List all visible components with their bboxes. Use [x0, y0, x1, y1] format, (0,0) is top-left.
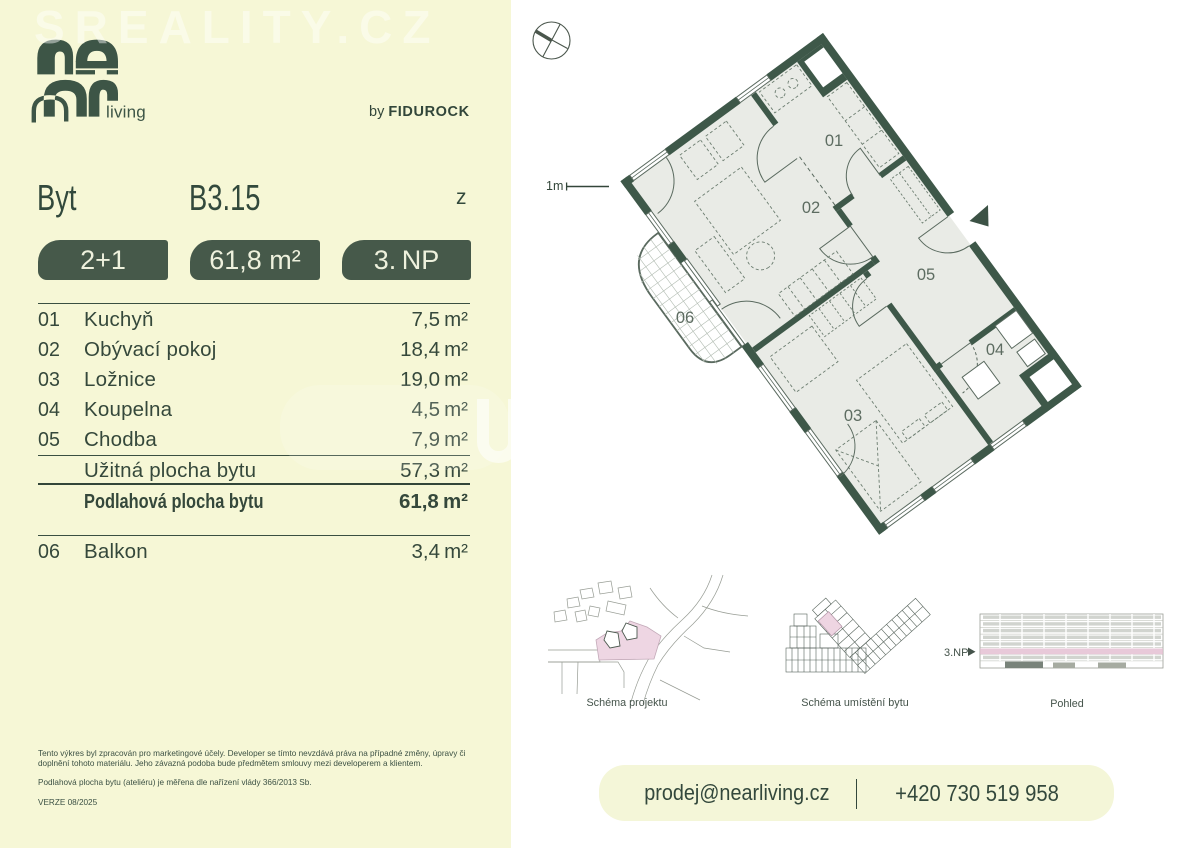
svg-text:1m: 1m — [546, 179, 563, 193]
svg-text:05: 05 — [917, 266, 935, 284]
svg-text:01: 01 — [825, 132, 843, 150]
svg-text:3.NP: 3.NP — [944, 647, 968, 659]
svg-text:04: 04 — [986, 341, 1004, 359]
svg-text:Pohled: Pohled — [1050, 698, 1084, 710]
svg-text:03: 03 — [844, 407, 862, 425]
svg-text:02: 02 — [802, 199, 820, 217]
svg-text:Schéma projektu: Schéma projektu — [586, 697, 667, 709]
svg-text:06: 06 — [676, 309, 694, 327]
svg-text:Schéma umístění bytu: Schéma umístění bytu — [801, 697, 908, 709]
